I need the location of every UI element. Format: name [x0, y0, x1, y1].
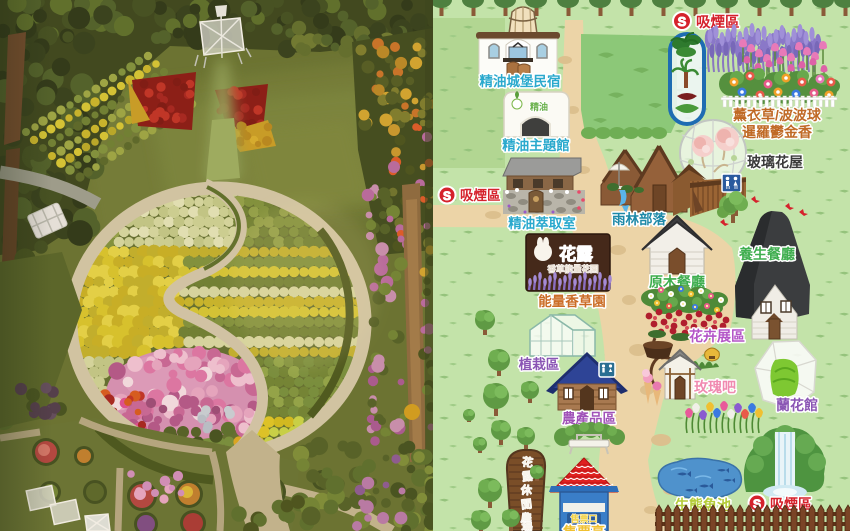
- svg-text:閒: 閒: [520, 497, 533, 511]
- svg-text:暹羅鬱金香: 暹羅鬱金香: [742, 124, 813, 140]
- svg-text:S: S: [443, 189, 451, 203]
- svg-text:玻璃花屋: 玻璃花屋: [747, 154, 803, 170]
- svg-text:精油: 精油: [530, 101, 548, 112]
- svg-text:場: 場: [522, 520, 533, 531]
- svg-text:吸煙區: 吸煙區: [460, 187, 501, 203]
- svg-text:薰衣草/波波球: 薰衣草/波波球: [733, 107, 822, 123]
- svg-text:售票亭: 售票亭: [562, 524, 605, 531]
- svg-text:玫瑰吧: 玫瑰吧: [694, 379, 736, 395]
- svg-text:能量香草園: 能量香草園: [538, 293, 606, 309]
- svg-text:雨林部落: 雨林部落: [612, 211, 666, 227]
- svg-text:花卉展區: 花卉展區: [689, 328, 745, 344]
- svg-text:S: S: [678, 14, 687, 29]
- svg-text:精油萃取室: 精油萃取室: [508, 215, 576, 231]
- svg-text:精油城堡民宿: 精油城堡民宿: [480, 73, 561, 89]
- svg-text:售票口: 售票口: [569, 513, 597, 524]
- svg-text:精油主題館: 精油主題館: [502, 137, 570, 153]
- svg-text:花露: 花露: [559, 244, 594, 264]
- svg-text:養生餐廳: 養生餐廳: [738, 246, 795, 262]
- svg-text:蘭花館: 蘭花館: [776, 397, 818, 413]
- svg-text:植栽區: 植栽區: [518, 356, 560, 372]
